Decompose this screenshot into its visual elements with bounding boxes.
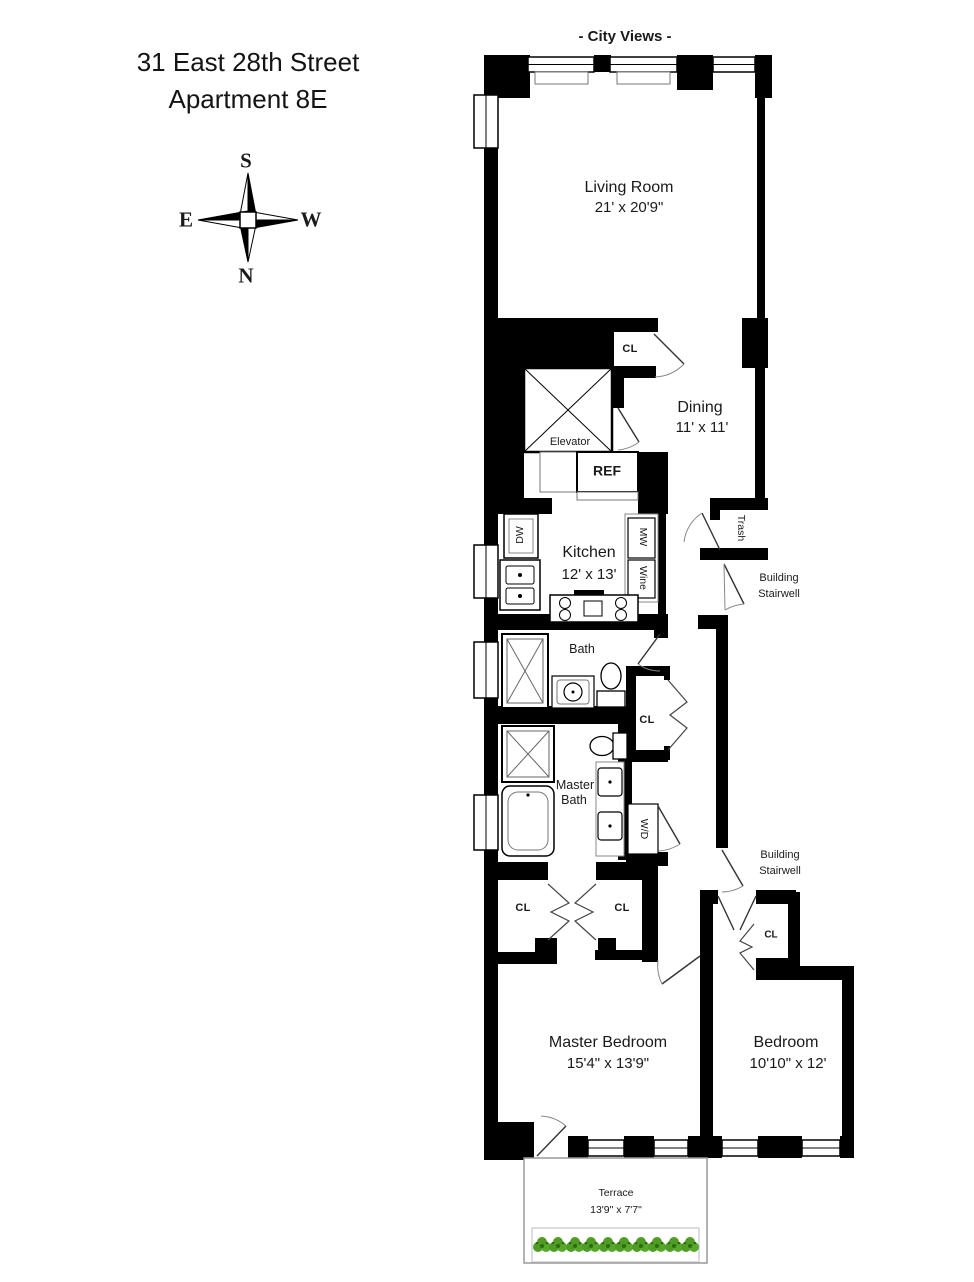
- stairwell-upper-line2: Stairwell: [758, 588, 800, 600]
- bath-fixtures: [502, 634, 625, 708]
- stairwell-lower-line1: Building: [760, 849, 799, 861]
- refrigerator-label: REF: [593, 463, 621, 478]
- master-bath-label-line2: Bath: [561, 794, 587, 808]
- closet-hall-label: CL: [639, 714, 654, 726]
- closet-master-left-label: CL: [515, 902, 530, 914]
- terrace-dims: 13'9" x 7'7": [590, 1205, 642, 1217]
- dishwasher-label: DW: [515, 526, 527, 544]
- wine-cooler-label: Wine: [636, 566, 648, 590]
- microwave-label: MW: [636, 528, 648, 547]
- dining-dims: 11' x 11': [676, 420, 729, 437]
- stairwell-lower-line2: Stairwell: [759, 865, 801, 877]
- master-bedroom-dims: 15'4" x 13'9": [567, 1056, 649, 1073]
- closet-dining-label: CL: [622, 343, 637, 355]
- city-views-label: - City Views -: [578, 29, 671, 46]
- master-bath-label-line1: Master: [556, 779, 594, 793]
- floor-plan-drawing: [0, 0, 974, 1282]
- trash-label: Trash: [734, 515, 746, 541]
- refrigerator-and-counter: [540, 452, 638, 500]
- kitchen-dims: 12' x 13': [562, 567, 617, 584]
- compass-north-label: N: [238, 264, 253, 287]
- floor-plan-page: 31 East 28th Street Apartment 8E - City …: [0, 0, 974, 1282]
- living-room-label: Living Room: [585, 179, 674, 197]
- closet-master-right-label: CL: [614, 902, 629, 914]
- plan-title: 31 East 28th Street Apartment 8E: [108, 44, 388, 118]
- bath-label: Bath: [569, 643, 595, 657]
- compass-east-label: E: [179, 208, 193, 231]
- elevator-label: Elevator: [550, 436, 590, 448]
- compass-rose-icon: [198, 173, 298, 262]
- washer-dryer-label: W/D: [637, 819, 649, 839]
- compass-west-label: W: [301, 208, 322, 231]
- kitchen-label: Kitchen: [562, 544, 615, 562]
- plan-title-line1: 31 East 28th Street: [108, 44, 388, 81]
- bedroom-label: Bedroom: [754, 1034, 819, 1052]
- bedroom-dims: 10'10" x 12': [750, 1056, 827, 1073]
- living-room-dims: 21' x 20'9": [595, 200, 664, 217]
- closet-bedroom-label: CL: [764, 930, 777, 941]
- stairwell-upper-line1: Building: [759, 572, 798, 584]
- compass-south-label: S: [240, 149, 252, 172]
- terrace-label: Terrace: [598, 1188, 633, 1200]
- dining-label: Dining: [677, 399, 722, 417]
- master-bedroom-label: Master Bedroom: [549, 1034, 667, 1052]
- plan-title-line2: Apartment 8E: [108, 81, 388, 118]
